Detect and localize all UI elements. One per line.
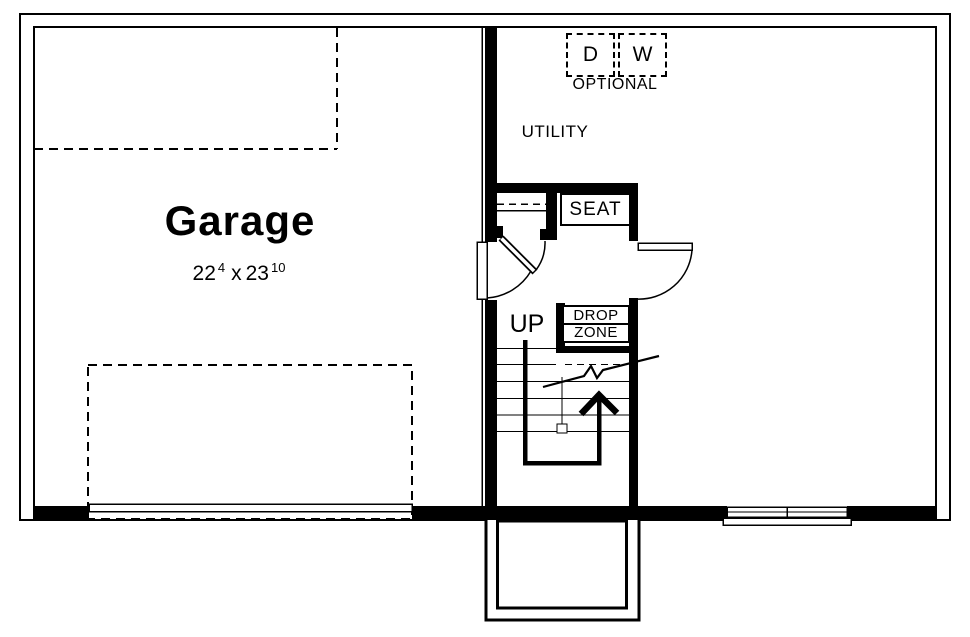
dim-width-ft: 22 <box>193 262 216 285</box>
garage-room-label: Garage <box>140 197 340 245</box>
drop-zone-south-wall <box>556 346 638 353</box>
garage-door-dashed-region <box>88 365 412 519</box>
wall-segment <box>847 506 937 520</box>
stairs <box>497 349 630 434</box>
stair-newel-post <box>557 424 567 433</box>
stairs-up-label: UP <box>500 310 554 339</box>
utility-room-label: UTILITY <box>505 122 605 142</box>
closet-door-jamb-left <box>489 226 503 238</box>
garage-entry-door-swing-arc <box>487 271 531 298</box>
seat-label: SEAT <box>561 194 630 225</box>
doors <box>477 238 692 299</box>
floor-plan: Garage 224x2310 UTILITY D W OPTIONAL SEA… <box>0 0 970 637</box>
washer-box: W <box>618 33 667 77</box>
closet-door-leaf-core <box>502 239 535 272</box>
bulkhead-inner <box>498 521 627 608</box>
stair-east-wall <box>629 298 638 520</box>
floor-plan-drawing <box>0 0 970 637</box>
washer-label: W <box>633 43 653 66</box>
mudroom-north-wall <box>485 183 638 193</box>
garage-dimensions-label: 224x2310 <box>140 262 340 286</box>
closet-shelf <box>497 204 546 211</box>
garage-divider-wall-upper <box>485 27 497 242</box>
wall-segment <box>412 506 727 520</box>
interior-walls <box>485 27 638 520</box>
closet-door-jamb-right <box>540 229 548 240</box>
hall-door-swing-arc <box>636 250 692 299</box>
drop-zone-label-line2: ZONE <box>563 324 629 342</box>
dim-depth-ft: 23 <box>246 262 269 285</box>
closet-door-swing-arc <box>536 241 545 270</box>
stair-direction-arrow <box>525 340 617 463</box>
dim-width-in: 4 <box>218 260 225 275</box>
garage-entry-door-leaf <box>477 242 487 299</box>
dim-separator: x <box>231 262 242 285</box>
drop-zone-label-line1: DROP <box>563 306 629 324</box>
garage-divider-wall-lower <box>485 300 497 520</box>
window-sill <box>723 518 851 525</box>
stair-bulkhead <box>486 509 639 620</box>
dryer-box: D <box>566 33 615 77</box>
garage-front-dashed-region <box>34 28 337 149</box>
window <box>723 507 851 525</box>
dryer-label: D <box>583 43 598 66</box>
optional-label: OPTIONAL <box>565 76 665 94</box>
garage-door <box>89 504 412 512</box>
wall-segment <box>33 506 89 520</box>
stair-break-line <box>543 356 659 387</box>
dim-depth-in: 10 <box>271 260 285 275</box>
hall-door-leaf <box>638 243 692 250</box>
garage-door-panel <box>89 504 412 512</box>
